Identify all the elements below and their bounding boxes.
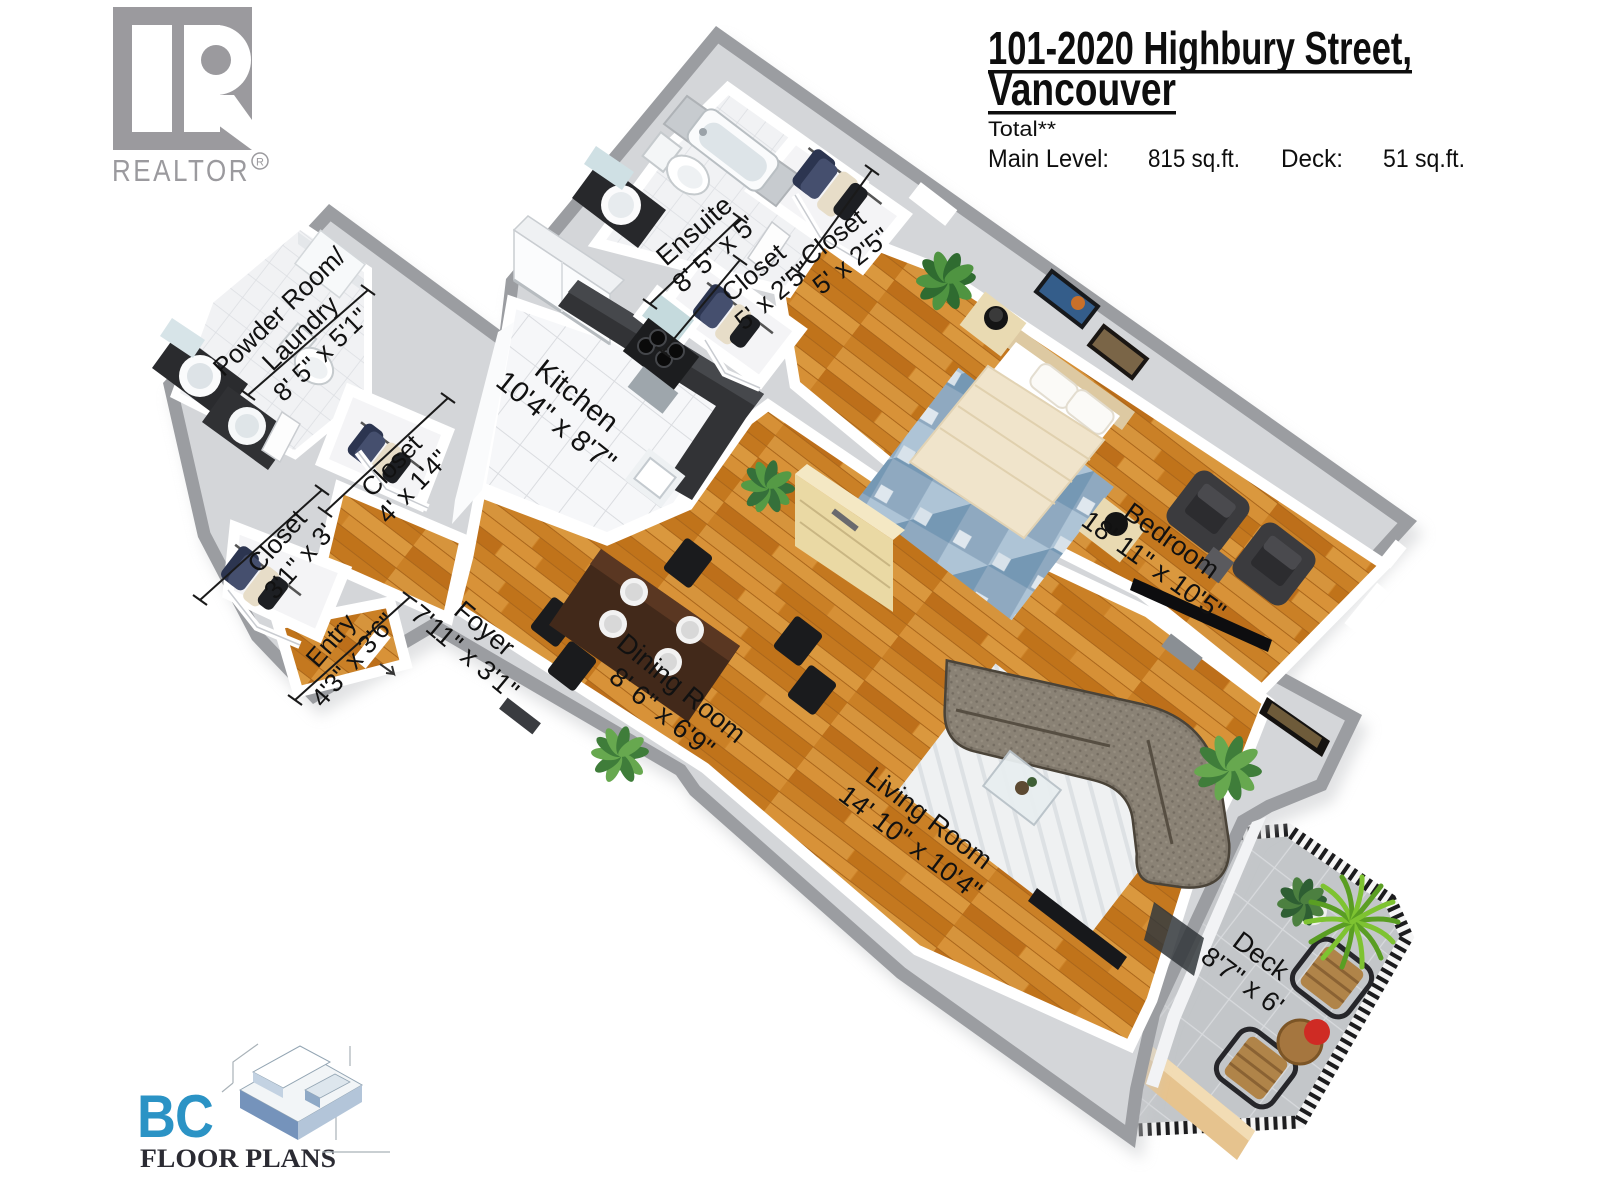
svg-text:51 sq.ft.: 51 sq.ft.	[1383, 145, 1465, 173]
svg-text:Vancouver: Vancouver	[988, 63, 1176, 115]
svg-text:BC: BC	[137, 1083, 213, 1150]
svg-text:Deck:: Deck:	[1281, 145, 1343, 173]
svg-text:FLOOR PLANS: FLOOR PLANS	[140, 1144, 336, 1173]
svg-text:815 sq.ft.: 815 sq.ft.	[1148, 145, 1240, 173]
svg-text:R: R	[256, 157, 264, 169]
svg-text:Main Level:: Main Level:	[988, 145, 1109, 173]
svg-text:Total**: Total**	[988, 118, 1056, 141]
svg-text:REALTOR: REALTOR	[112, 153, 250, 188]
